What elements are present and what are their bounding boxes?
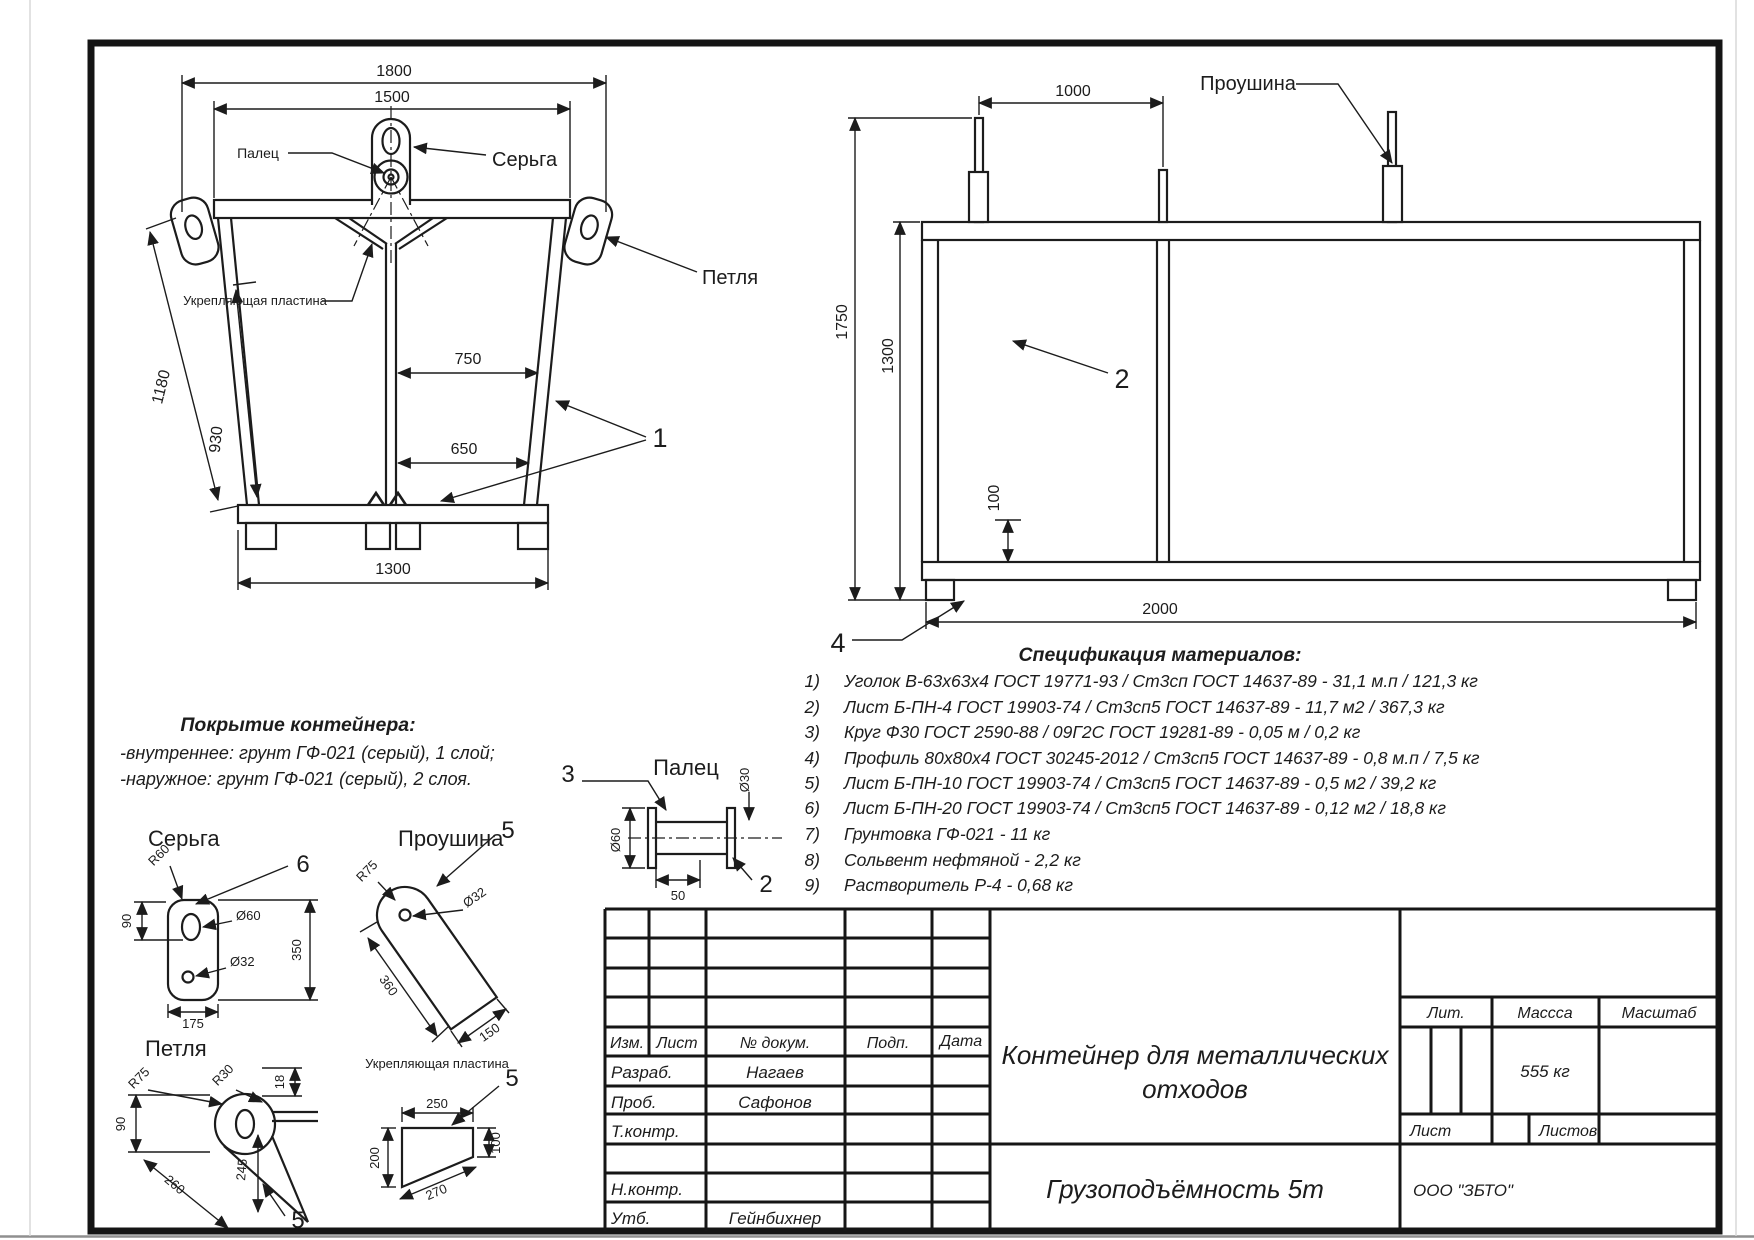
tb-mass-value: 555 кг (1520, 1062, 1570, 1081)
detail-petlya-title: Петля (145, 1036, 207, 1061)
spec-item-num: 7) (804, 824, 820, 844)
dim-1300-side: 1300 (880, 338, 897, 374)
tb-name-utv: Гейнбихнер (729, 1209, 822, 1228)
dim-100: 100 (986, 485, 1003, 512)
tb-scale: Масштаб (1622, 1005, 1698, 1022)
spec-item-text: Растворитель Р-4 - 0,68 кг (844, 875, 1073, 895)
tb-col-podp: Подп. (867, 1035, 910, 1052)
dim-1000: 1000 (1055, 83, 1091, 100)
spec-item-text: Лист Б-ПН-20 ГОСТ 19903-74 / Ст3сп5 ГОСТ… (843, 798, 1446, 818)
detail-petlya-245: 245 (233, 1158, 250, 1181)
label-palec: Палец (237, 145, 279, 161)
detail-palec-dia30: Ø30 (737, 768, 752, 793)
tb-doc-title-line2: отходов (1142, 1074, 1248, 1104)
detail-serga-callout-6: 6 (296, 851, 309, 878)
tb-lit: Лит. (1426, 1005, 1464, 1022)
spec-item-text: Сольвент нефтяной - 2,2 кг (844, 850, 1081, 870)
detail-palec-50: 50 (671, 888, 685, 903)
label-proushina: Проушина (1200, 73, 1297, 95)
detail-petlya-18: 18 (272, 1075, 287, 1089)
tb-company: ООО "ЗБТО" (1413, 1181, 1514, 1200)
spec-item-num: 2) (803, 697, 820, 717)
callout-4: 4 (830, 628, 845, 658)
detail-petlya-90: 90 (113, 1117, 128, 1131)
coating-title: Покрытие контейнера: (180, 714, 415, 736)
spec-item-text: Круг Ф30 ГОСТ 2590-88 / 09Г2С ГОСТ 19281… (844, 722, 1361, 742)
tb-row-razrab: Разраб. (611, 1063, 673, 1082)
tb-row-utv: Утб. (610, 1209, 650, 1228)
spec-item-num: 4) (804, 748, 820, 768)
tb-col-list: Лист (655, 1035, 697, 1052)
spec-item-num: 1) (804, 671, 820, 691)
tb-mass: Массса (1517, 1005, 1572, 1022)
tb-name-prob: Сафонов (738, 1093, 812, 1112)
tb-col-izm: Изм. (610, 1035, 644, 1052)
label-serga: Серьга (492, 149, 558, 171)
spec-item-num: 9) (804, 875, 820, 895)
spec-item-num: 3) (804, 722, 820, 742)
detail-petlya-callout-5: 5 (291, 1207, 304, 1234)
detail-serga-90: 90 (119, 914, 134, 928)
tb-name-razrab: Нагаев (746, 1063, 804, 1082)
coating-line-1: -внутреннее: грунт ГФ-021 (серый), 1 сло… (120, 743, 495, 763)
tb-col-doc: № докум. (740, 1035, 810, 1052)
spec-item-num: 5) (804, 773, 820, 793)
spec-item-text: Лист Б-ПН-10 ГОСТ 19903-74 / Ст3сп5 ГОСТ… (843, 773, 1437, 793)
callout-2: 2 (1114, 364, 1129, 394)
detail-palec-dia60: Ø60 (608, 828, 623, 853)
tb-sheet: Лист (1409, 1123, 1451, 1140)
tb-row-tkontr: Т.контр. (611, 1122, 680, 1141)
tb-doc-title-line1: Контейнер для металлических (1002, 1040, 1390, 1070)
spec-item-text: Уголок В-63х63х4 ГОСТ 19771-93 / Ст3сп Г… (843, 671, 1478, 691)
detail-plate-title: Укрепляющая пластина (365, 1056, 510, 1071)
spec-item-num: 6) (804, 798, 820, 818)
engineering-drawing-canvas: 1800 1500 750 650 1300 1180 930 Палец Се… (0, 0, 1754, 1240)
detail-proushina-title: Проушина (398, 826, 504, 851)
spec-item-text: Профиль 80х80х4 ГОСТ 30245-2012 / Ст3сп5… (844, 748, 1480, 768)
dim-650: 650 (451, 441, 478, 458)
dim-1800: 1800 (376, 63, 412, 80)
spec-item-text: Грунтовка ГФ-021 - 11 кг (844, 824, 1051, 844)
detail-palec-title: Палец (653, 755, 719, 780)
tb-col-data: Дата (938, 1033, 982, 1050)
spec-title: Спецификация материалов: (1018, 644, 1301, 666)
detail-plate-callout-5: 5 (505, 1065, 518, 1092)
detail-serga-175: 175 (182, 1016, 204, 1031)
dim-1500: 1500 (374, 89, 410, 106)
detail-plate-250: 250 (426, 1096, 448, 1111)
dim-750: 750 (455, 351, 482, 368)
dim-930: 930 (207, 425, 227, 453)
detail-proushina-callout-5: 5 (501, 817, 514, 844)
dim-1750: 1750 (834, 304, 851, 340)
dim-1300: 1300 (375, 561, 411, 578)
callout-1: 1 (652, 423, 667, 453)
spec-item-text: Лист Б-ПН-4 ГОСТ 19903-74 / Ст3сп5 ГОСТ … (843, 697, 1445, 717)
drawing-sheet: 1800 1500 750 650 1300 1180 930 Палец Се… (0, 0, 1754, 1240)
detail-palec-callout-2: 2 (759, 871, 772, 898)
coating-line-2: -наружное: грунт ГФ-021 (серый), 2 слоя. (120, 769, 472, 789)
spec-item-num: 8) (804, 850, 820, 870)
tb-sheets: Листов (1538, 1123, 1597, 1140)
tb-capacity: Грузоподъёмность 5т (1046, 1174, 1324, 1204)
label-reinforcing-plate: Укрепляющая пластина (183, 293, 328, 308)
detail-serga-350: 350 (289, 939, 304, 961)
tb-row-nkontr: Н.контр. (611, 1180, 683, 1199)
detail-serga-dia32: Ø32 (230, 954, 255, 969)
detail-serga-dia60: Ø60 (236, 908, 261, 923)
detail-plate-100: 100 (488, 1132, 503, 1154)
detail-plate-200: 200 (367, 1147, 382, 1169)
label-petlya: Петля (702, 267, 758, 289)
tb-row-prob: Проб. (611, 1093, 657, 1112)
detail-palec-callout-3: 3 (561, 761, 574, 788)
dim-2000: 2000 (1142, 601, 1178, 618)
